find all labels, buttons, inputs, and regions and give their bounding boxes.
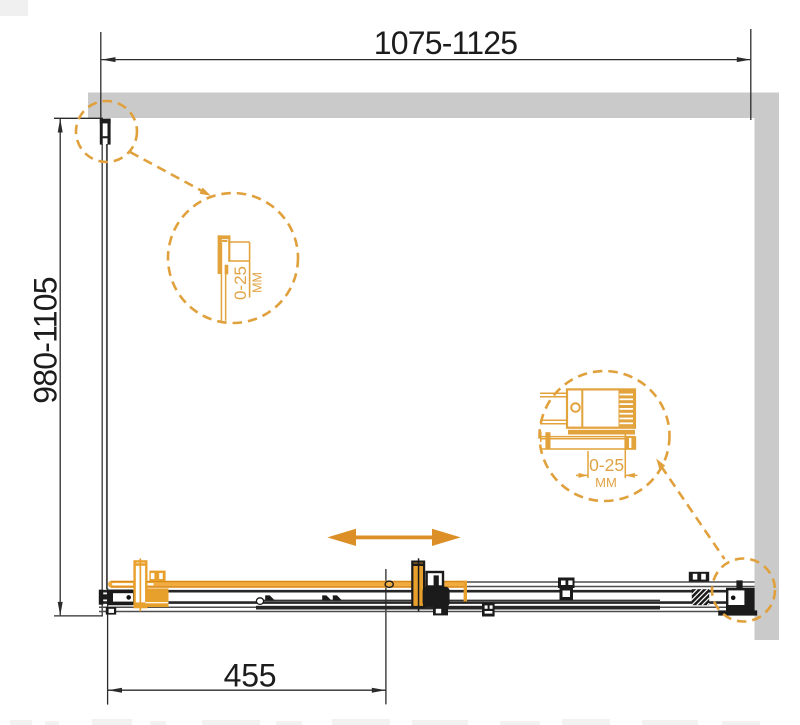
svg-text:980-1105: 980-1105 (28, 277, 64, 403)
svg-text:1075-1125: 1075-1125 (374, 25, 517, 61)
svg-text:MM: MM (595, 475, 617, 490)
svg-text:MM: MM (251, 272, 265, 293)
svg-text:0-25: 0-25 (231, 266, 250, 300)
svg-text:0-25: 0-25 (589, 455, 624, 475)
svg-text:455: 455 (224, 657, 277, 693)
